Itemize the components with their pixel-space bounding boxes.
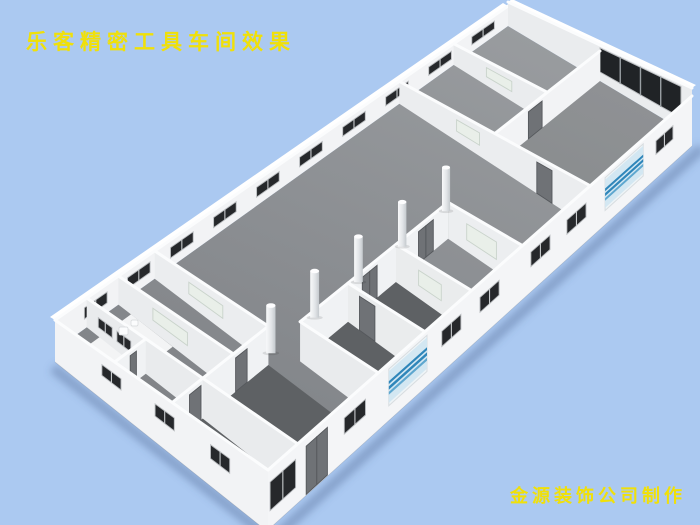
credit-text: 金源装饰公司制作 xyxy=(510,482,686,508)
building-rendering xyxy=(0,0,700,525)
workshop-render-page: 乐客精密工具车间效果 金源装饰公司制作 xyxy=(0,0,700,525)
workshop-title: 乐客精密工具车间效果 xyxy=(26,26,296,56)
